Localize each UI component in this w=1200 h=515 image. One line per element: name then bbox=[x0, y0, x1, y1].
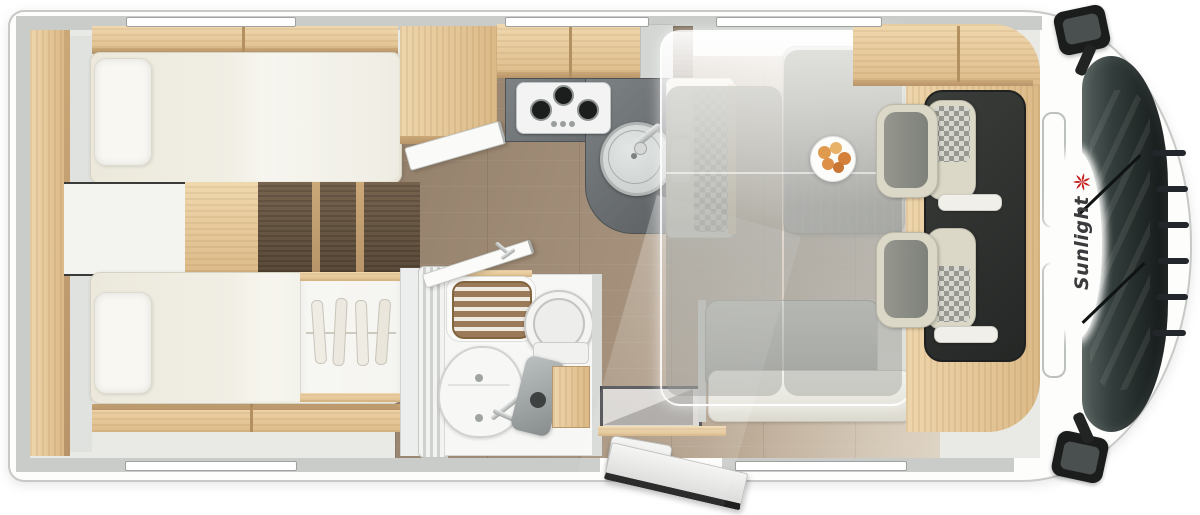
grille-slat bbox=[1158, 222, 1189, 228]
shelf-divider bbox=[242, 26, 245, 54]
wardrobe-hangers-icon bbox=[355, 300, 369, 366]
sunburst-icon bbox=[1072, 172, 1092, 192]
burner bbox=[530, 99, 552, 121]
mattress-seam bbox=[666, 172, 902, 174]
bed-blanket bbox=[228, 53, 399, 181]
step-divider bbox=[356, 182, 364, 272]
window-top-rear bbox=[126, 17, 296, 27]
window-top-kitchen bbox=[505, 17, 649, 27]
entry-threshold bbox=[598, 426, 726, 436]
cab-overhead-cabinet bbox=[853, 24, 1040, 86]
grille-slat bbox=[1156, 294, 1188, 300]
brand-logo-text: Sunlight bbox=[1071, 196, 1093, 290]
armrest bbox=[938, 194, 1002, 211]
pillow bbox=[94, 292, 152, 394]
bed-steps bbox=[258, 182, 420, 272]
armrest bbox=[934, 326, 998, 343]
wardrobe-side-panel bbox=[400, 268, 419, 456]
wardrobe-top-strip bbox=[300, 272, 400, 281]
cab-cabinet-lip bbox=[853, 80, 1033, 86]
brand-logo: Sunlight bbox=[1066, 166, 1098, 296]
grille-slat bbox=[1156, 186, 1188, 192]
motorhome-floorplan: Sunlight bbox=[0, 0, 1200, 488]
pillow bbox=[94, 58, 152, 166]
wall-bottom-left bbox=[16, 458, 600, 472]
cabinet-divider bbox=[569, 24, 572, 78]
rear-wall-shelf bbox=[30, 30, 64, 456]
hob-knob bbox=[569, 121, 575, 127]
drop-down-bed-mattress bbox=[784, 50, 902, 396]
basin-seam bbox=[448, 384, 510, 386]
faucet-base bbox=[634, 142, 647, 155]
between-bed-cabinet bbox=[64, 182, 185, 276]
shower-grate-icon bbox=[452, 281, 532, 339]
bed-step-platform bbox=[185, 182, 258, 272]
bathroom-cabinet bbox=[552, 366, 590, 428]
window-top-dinette bbox=[716, 17, 882, 27]
burner bbox=[577, 99, 599, 121]
grille-slat bbox=[1158, 258, 1189, 264]
overhead-shelf-bottom-lip bbox=[92, 404, 402, 410]
headrest-checker bbox=[934, 266, 970, 322]
shelf-divider bbox=[250, 404, 253, 432]
burner bbox=[553, 85, 574, 106]
wardrobe-bottom-strip bbox=[300, 393, 400, 402]
seat-cushion-center bbox=[884, 112, 928, 188]
headrest-checker bbox=[934, 106, 970, 162]
basin-drain bbox=[475, 414, 483, 422]
shower-module-dot bbox=[530, 392, 546, 408]
cabinet-divider bbox=[957, 26, 960, 82]
wall-left bbox=[16, 16, 30, 472]
window-bottom-rear bbox=[125, 461, 297, 471]
basin-drain bbox=[475, 374, 483, 382]
window-bottom-dinette bbox=[735, 461, 907, 471]
drop-down-bed-mattress bbox=[666, 86, 782, 396]
hob-knob bbox=[551, 121, 557, 127]
grille-slat bbox=[1152, 150, 1186, 156]
grille-slat bbox=[1152, 330, 1186, 336]
seat-cushion-center bbox=[884, 240, 928, 318]
hob-knob bbox=[560, 121, 566, 127]
fruit bbox=[833, 162, 844, 173]
step-divider bbox=[312, 182, 320, 272]
